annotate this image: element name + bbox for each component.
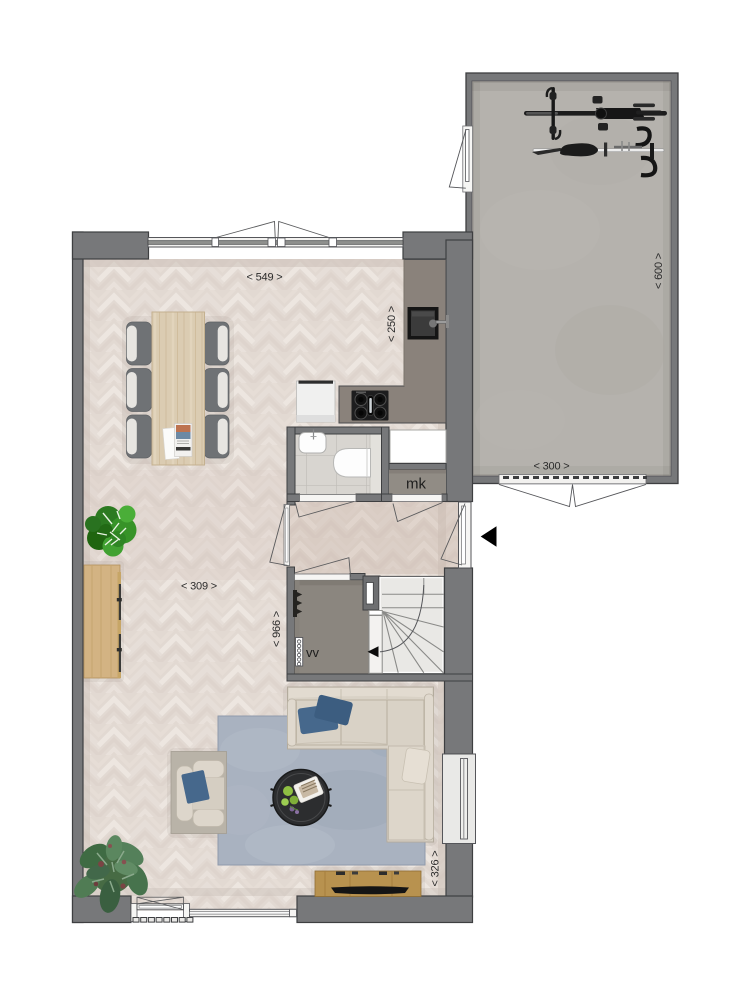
svg-text:< 300 >: < 300 > — [534, 461, 570, 473]
svg-text:< 309 >: < 309 > — [181, 581, 217, 593]
svg-text:< 600 >: < 600 > — [653, 253, 665, 289]
svg-text:mk: mk — [406, 476, 426, 493]
svg-text:< 250 >: < 250 > — [386, 306, 398, 342]
svg-text:< 326 >: < 326 > — [430, 851, 442, 887]
svg-text:vv: vv — [306, 645, 320, 660]
svg-text:< 966 >: < 966 > — [271, 611, 283, 647]
svg-text:< 549 >: < 549 > — [247, 272, 283, 284]
